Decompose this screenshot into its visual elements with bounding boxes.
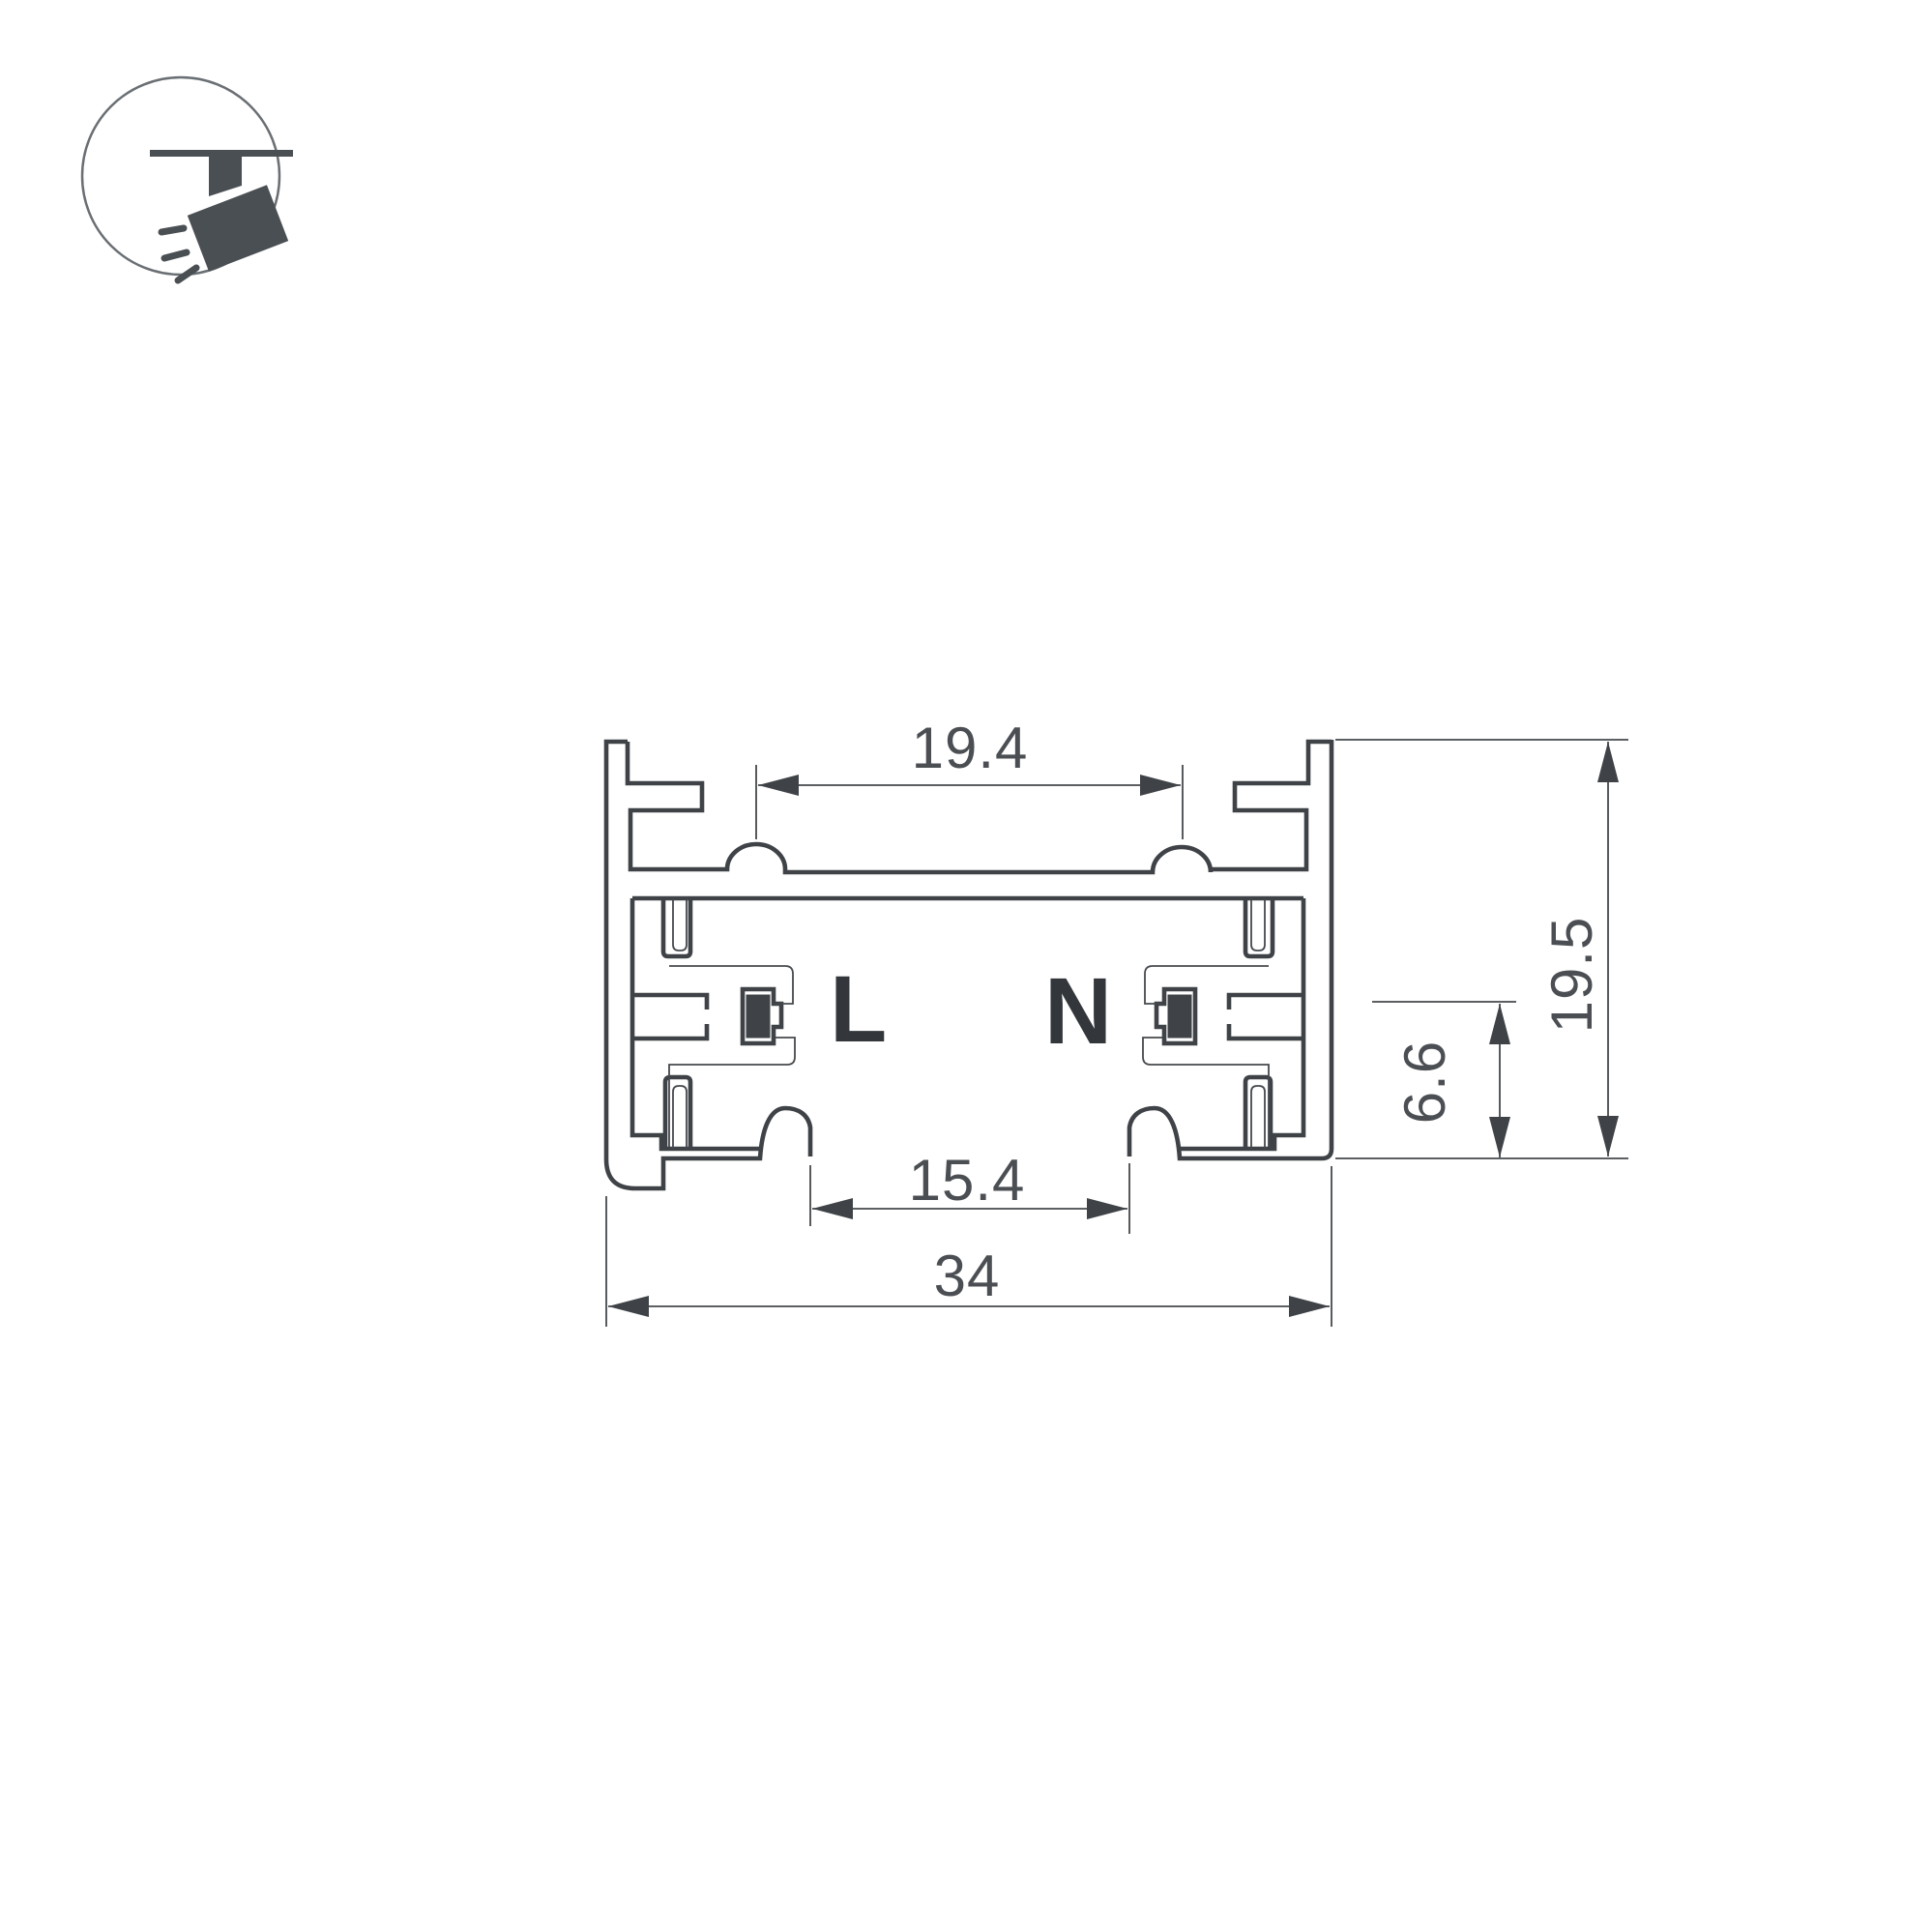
dimension-value: 19.5	[1539, 917, 1604, 1034]
insulator-liner-left-lower	[669, 1038, 795, 1147]
track-rail-bar	[150, 150, 293, 157]
icon-badge	[82, 77, 293, 280]
profile-cross-section	[606, 740, 1332, 1188]
arrowhead-down-icon	[1597, 1116, 1619, 1156]
conductor-strip-right	[1168, 995, 1191, 1038]
dimension-top-groove-width: 19.4	[756, 716, 1183, 839]
dimension-value: 19.4	[912, 716, 1029, 780]
arrowhead-down-icon	[1489, 1117, 1510, 1157]
contact-jaw-left-upper	[634, 995, 707, 1010]
dimension-value: 6.6	[1392, 1040, 1457, 1124]
dimension-overall-height: 19.5	[1335, 740, 1628, 1158]
dimension-contact-height: 6.6	[1372, 1002, 1516, 1157]
contact-jaw-right-lower	[1229, 1024, 1302, 1039]
conductor-label-live: L	[830, 956, 887, 1062]
profile-outline-right	[1129, 740, 1332, 1158]
arrowhead-right-icon	[1140, 775, 1181, 796]
arrowhead-up-icon	[1597, 742, 1619, 782]
spotlight-stem	[209, 157, 242, 196]
spotlight-head	[188, 185, 288, 271]
arrowhead-left-icon	[758, 775, 799, 796]
arrowhead-up-icon	[1489, 1004, 1510, 1044]
conductor-strip-left	[746, 995, 770, 1038]
light-ray-icon	[161, 228, 184, 232]
dimension-value: 15.4	[909, 1148, 1026, 1213]
light-ray-icon	[164, 252, 187, 258]
dimension-value: 34	[934, 1244, 1001, 1308]
prong-slot-liner-right	[1251, 898, 1265, 951]
arrowhead-left-icon	[812, 1198, 853, 1219]
insulator-liner-right-lower	[1143, 1038, 1269, 1147]
dimension-opening-width: 15.4	[810, 1148, 1129, 1234]
prong-slot-liner-left	[673, 898, 687, 951]
rib-slot-liner-left	[673, 1086, 687, 1149]
bottom-rib-right	[1245, 1077, 1271, 1149]
arrowhead-left-icon	[608, 1296, 649, 1317]
top-prong-right	[1245, 898, 1273, 956]
rib-slot-liner-right	[1251, 1086, 1265, 1149]
page: L N 19.4 15.4 34 19.5	[0, 0, 1932, 1932]
contact-jaw-right-upper	[1229, 995, 1302, 1010]
conductor-label-neutral: N	[1044, 958, 1112, 1064]
arrowhead-right-icon	[1289, 1296, 1330, 1317]
arrowhead-right-icon	[1087, 1198, 1127, 1219]
track-spotlight-icon	[150, 150, 293, 280]
contact-jaw-left-lower	[634, 1024, 707, 1039]
drawing-sheet: L N 19.4 15.4 34 19.5	[0, 0, 1932, 1932]
